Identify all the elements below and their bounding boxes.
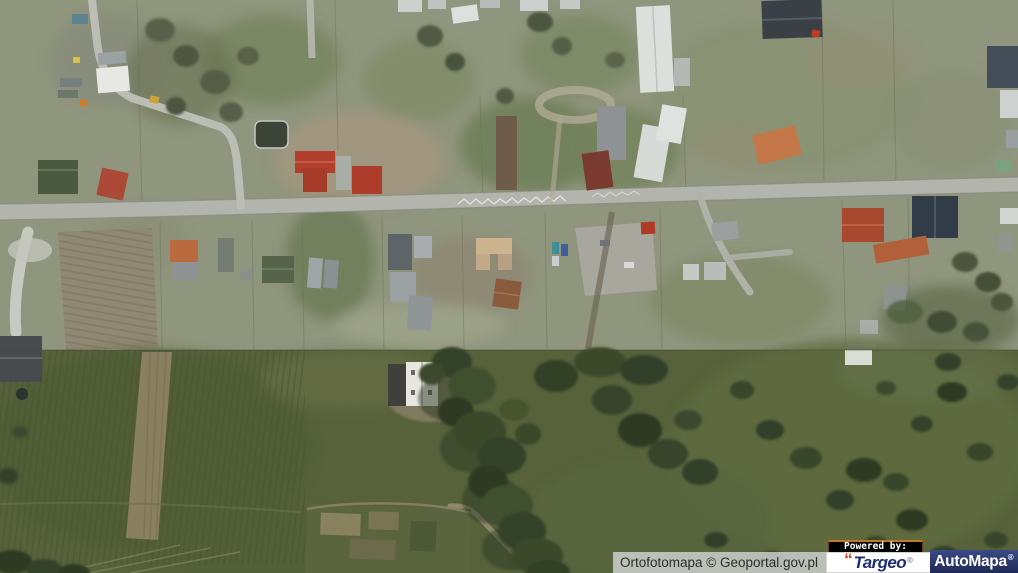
- terracotta-house: [170, 240, 198, 262]
- red-roof-house-b: [96, 168, 128, 201]
- rust-roof-house: [492, 278, 522, 309]
- red-roof-barn: [352, 166, 382, 194]
- automapa-registered-mark: ®: [1008, 553, 1014, 562]
- white-barn: [96, 66, 130, 94]
- maroon-roof-house: [582, 150, 614, 190]
- garden-plot: [305, 501, 471, 573]
- green-roof-house-south: [262, 256, 294, 283]
- green-roof-house: [38, 160, 78, 194]
- map-attribution: Ortofotomapa © Geoportal.gov.pl: [613, 552, 830, 573]
- targeo-registered-mark: ®: [907, 556, 913, 565]
- plowed-field: [58, 228, 158, 350]
- targeo-logo-text: Targeo: [854, 553, 906, 573]
- aerial-imagery: [0, 0, 1018, 573]
- white-shed-lower: [845, 350, 872, 365]
- targeo-logo[interactable]: “ Targeo ®: [826, 552, 931, 573]
- attribution-text: Ortofotomapa © Geoportal.gov.pl: [620, 555, 818, 570]
- white-warehouse: [636, 5, 674, 93]
- red-roof-house-a: [295, 151, 351, 192]
- brown-barn: [496, 116, 517, 190]
- pond: [255, 121, 288, 148]
- targeo-logo-mark: “: [844, 555, 853, 565]
- red-tile-house: [842, 208, 884, 242]
- automapa-logo[interactable]: AutoMapa ®: [930, 550, 1018, 573]
- automapa-logo-text: AutoMapa: [934, 553, 1007, 571]
- navy-roof-house: [912, 196, 958, 238]
- red-shed: [641, 222, 656, 235]
- map-viewport[interactable]: Ortofotomapa © Geoportal.gov.pl Powered …: [0, 0, 1018, 573]
